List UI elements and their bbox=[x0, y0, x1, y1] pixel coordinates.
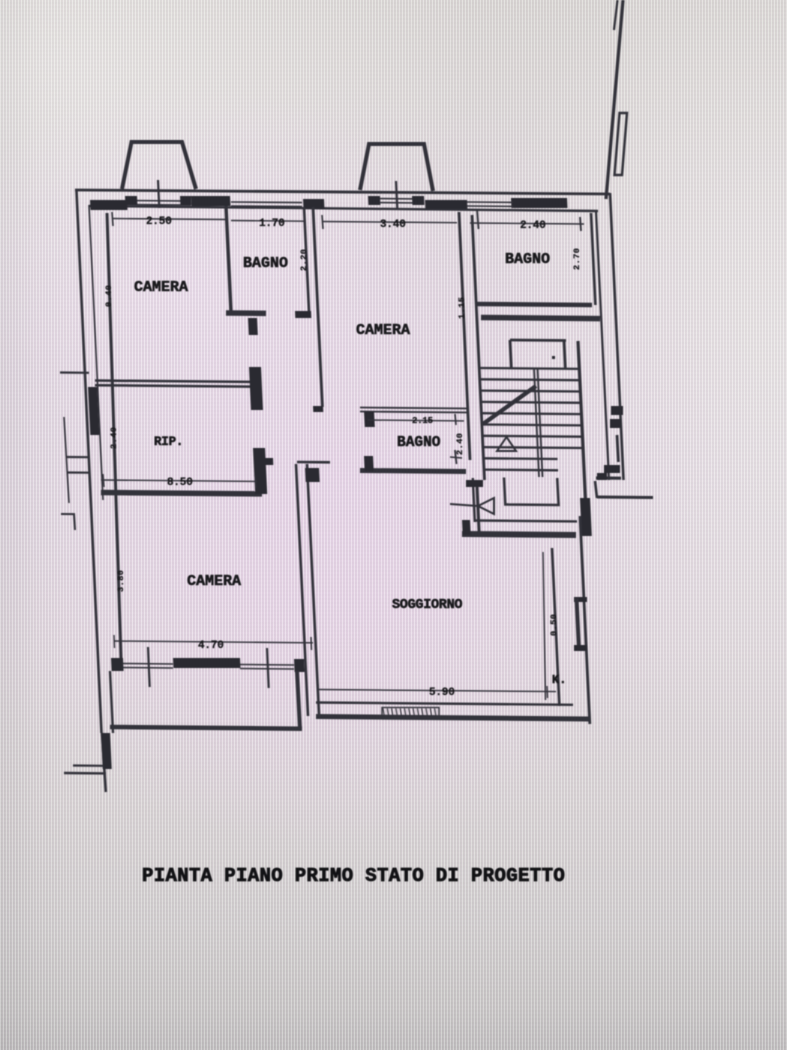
svg-text:CAMERA: CAMERA bbox=[187, 573, 241, 590]
svg-text:2.15: 2.15 bbox=[412, 416, 433, 426]
svg-text:1.15: 1.15 bbox=[457, 297, 467, 319]
svg-text:2.20: 2.20 bbox=[299, 249, 309, 271]
svg-text:2.40: 2.40 bbox=[109, 427, 119, 449]
svg-text:8.50: 8.50 bbox=[167, 477, 193, 489]
svg-text:BAGNO: BAGNO bbox=[397, 435, 441, 451]
svg-text:RIP.: RIP. bbox=[154, 435, 183, 449]
svg-text:3.80: 3.80 bbox=[116, 570, 126, 592]
svg-text:BAGNO: BAGNO bbox=[243, 255, 288, 272]
svg-text:CAMERA: CAMERA bbox=[356, 322, 410, 339]
svg-text:2.70: 2.70 bbox=[572, 248, 582, 270]
svg-text:4.70: 4.70 bbox=[198, 640, 224, 652]
svg-text:0.40: 0.40 bbox=[104, 285, 114, 307]
svg-text:1.70: 1.70 bbox=[259, 218, 285, 230]
svg-text:CAMERA: CAMERA bbox=[134, 279, 188, 296]
svg-text:2.40: 2.40 bbox=[455, 433, 465, 455]
svg-text:2.40: 2.40 bbox=[520, 220, 546, 232]
svg-text:3.40: 3.40 bbox=[380, 219, 406, 231]
svg-text:PIANTA PIANO PRIMO STATO DI PR: PIANTA PIANO PRIMO STATO DI PROGETTO bbox=[142, 865, 565, 887]
svg-text:BAGNO: BAGNO bbox=[505, 251, 550, 268]
svg-text:5.90: 5.90 bbox=[429, 687, 455, 699]
svg-text:0.50: 0.50 bbox=[549, 614, 559, 636]
svg-text:2.50: 2.50 bbox=[146, 216, 172, 228]
svg-text:K.: K. bbox=[552, 674, 567, 687]
svg-text:SOGGIORNO: SOGGIORNO bbox=[392, 598, 462, 613]
